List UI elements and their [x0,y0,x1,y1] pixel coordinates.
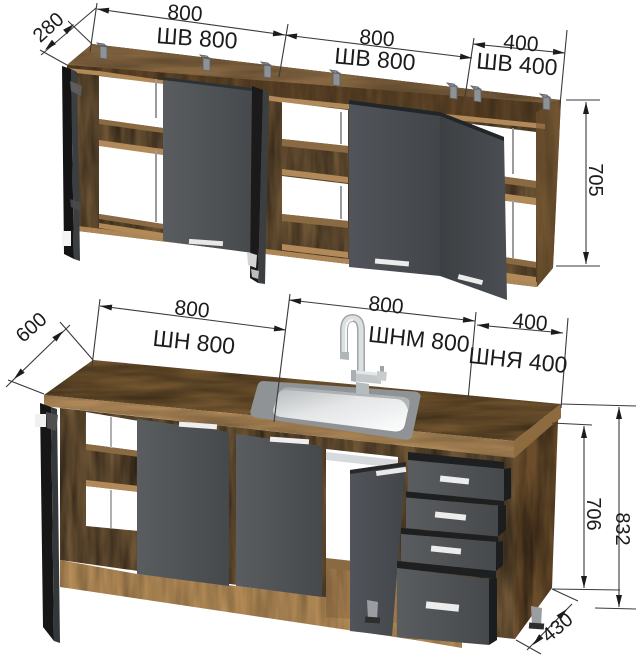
svg-text:800: 800 [173,296,210,323]
svg-text:400: 400 [511,309,548,336]
svg-text:800: 800 [367,292,404,319]
svg-text:706: 706 [582,497,604,530]
svg-text:832: 832 [611,512,633,545]
svg-text:705: 705 [584,163,606,196]
